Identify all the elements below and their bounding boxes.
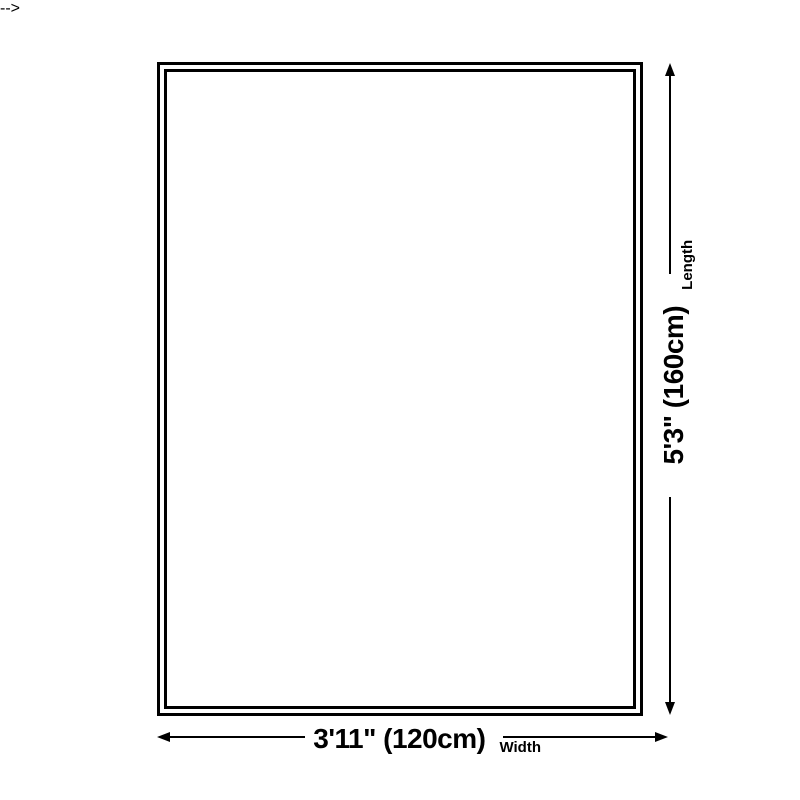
length-dimension: 5'3" (160cm) Length [648,63,692,715]
length-dimension-line-lead [669,497,672,702]
width-dimension-line-tail [503,736,655,739]
length-dimension-line-tail [669,76,672,274]
width-dimension: 3'11" (120cm) Width [157,715,668,759]
rug-outline-inner [164,69,636,709]
length-value-label: 5'3" (160cm) [658,306,690,465]
arrow-down-icon [665,702,675,715]
width-dimension-tail: Width [499,715,655,759]
length-axis-label: Length [679,240,696,290]
rug-dimension-diagram: --> 3'11" (120cm) Width 5'3" (160cm) Len… [0,0,800,800]
width-value-label: 3'11" (120cm) [313,723,485,755]
arrow-right-icon [655,732,668,742]
arrow-left-icon [157,732,170,742]
width-dimension-line-lead [170,736,305,739]
width-axis-label: Width [499,739,541,756]
rug-outline [157,62,643,716]
arrow-up-icon [665,63,675,76]
length-dimension-tail: Length [648,76,692,296]
